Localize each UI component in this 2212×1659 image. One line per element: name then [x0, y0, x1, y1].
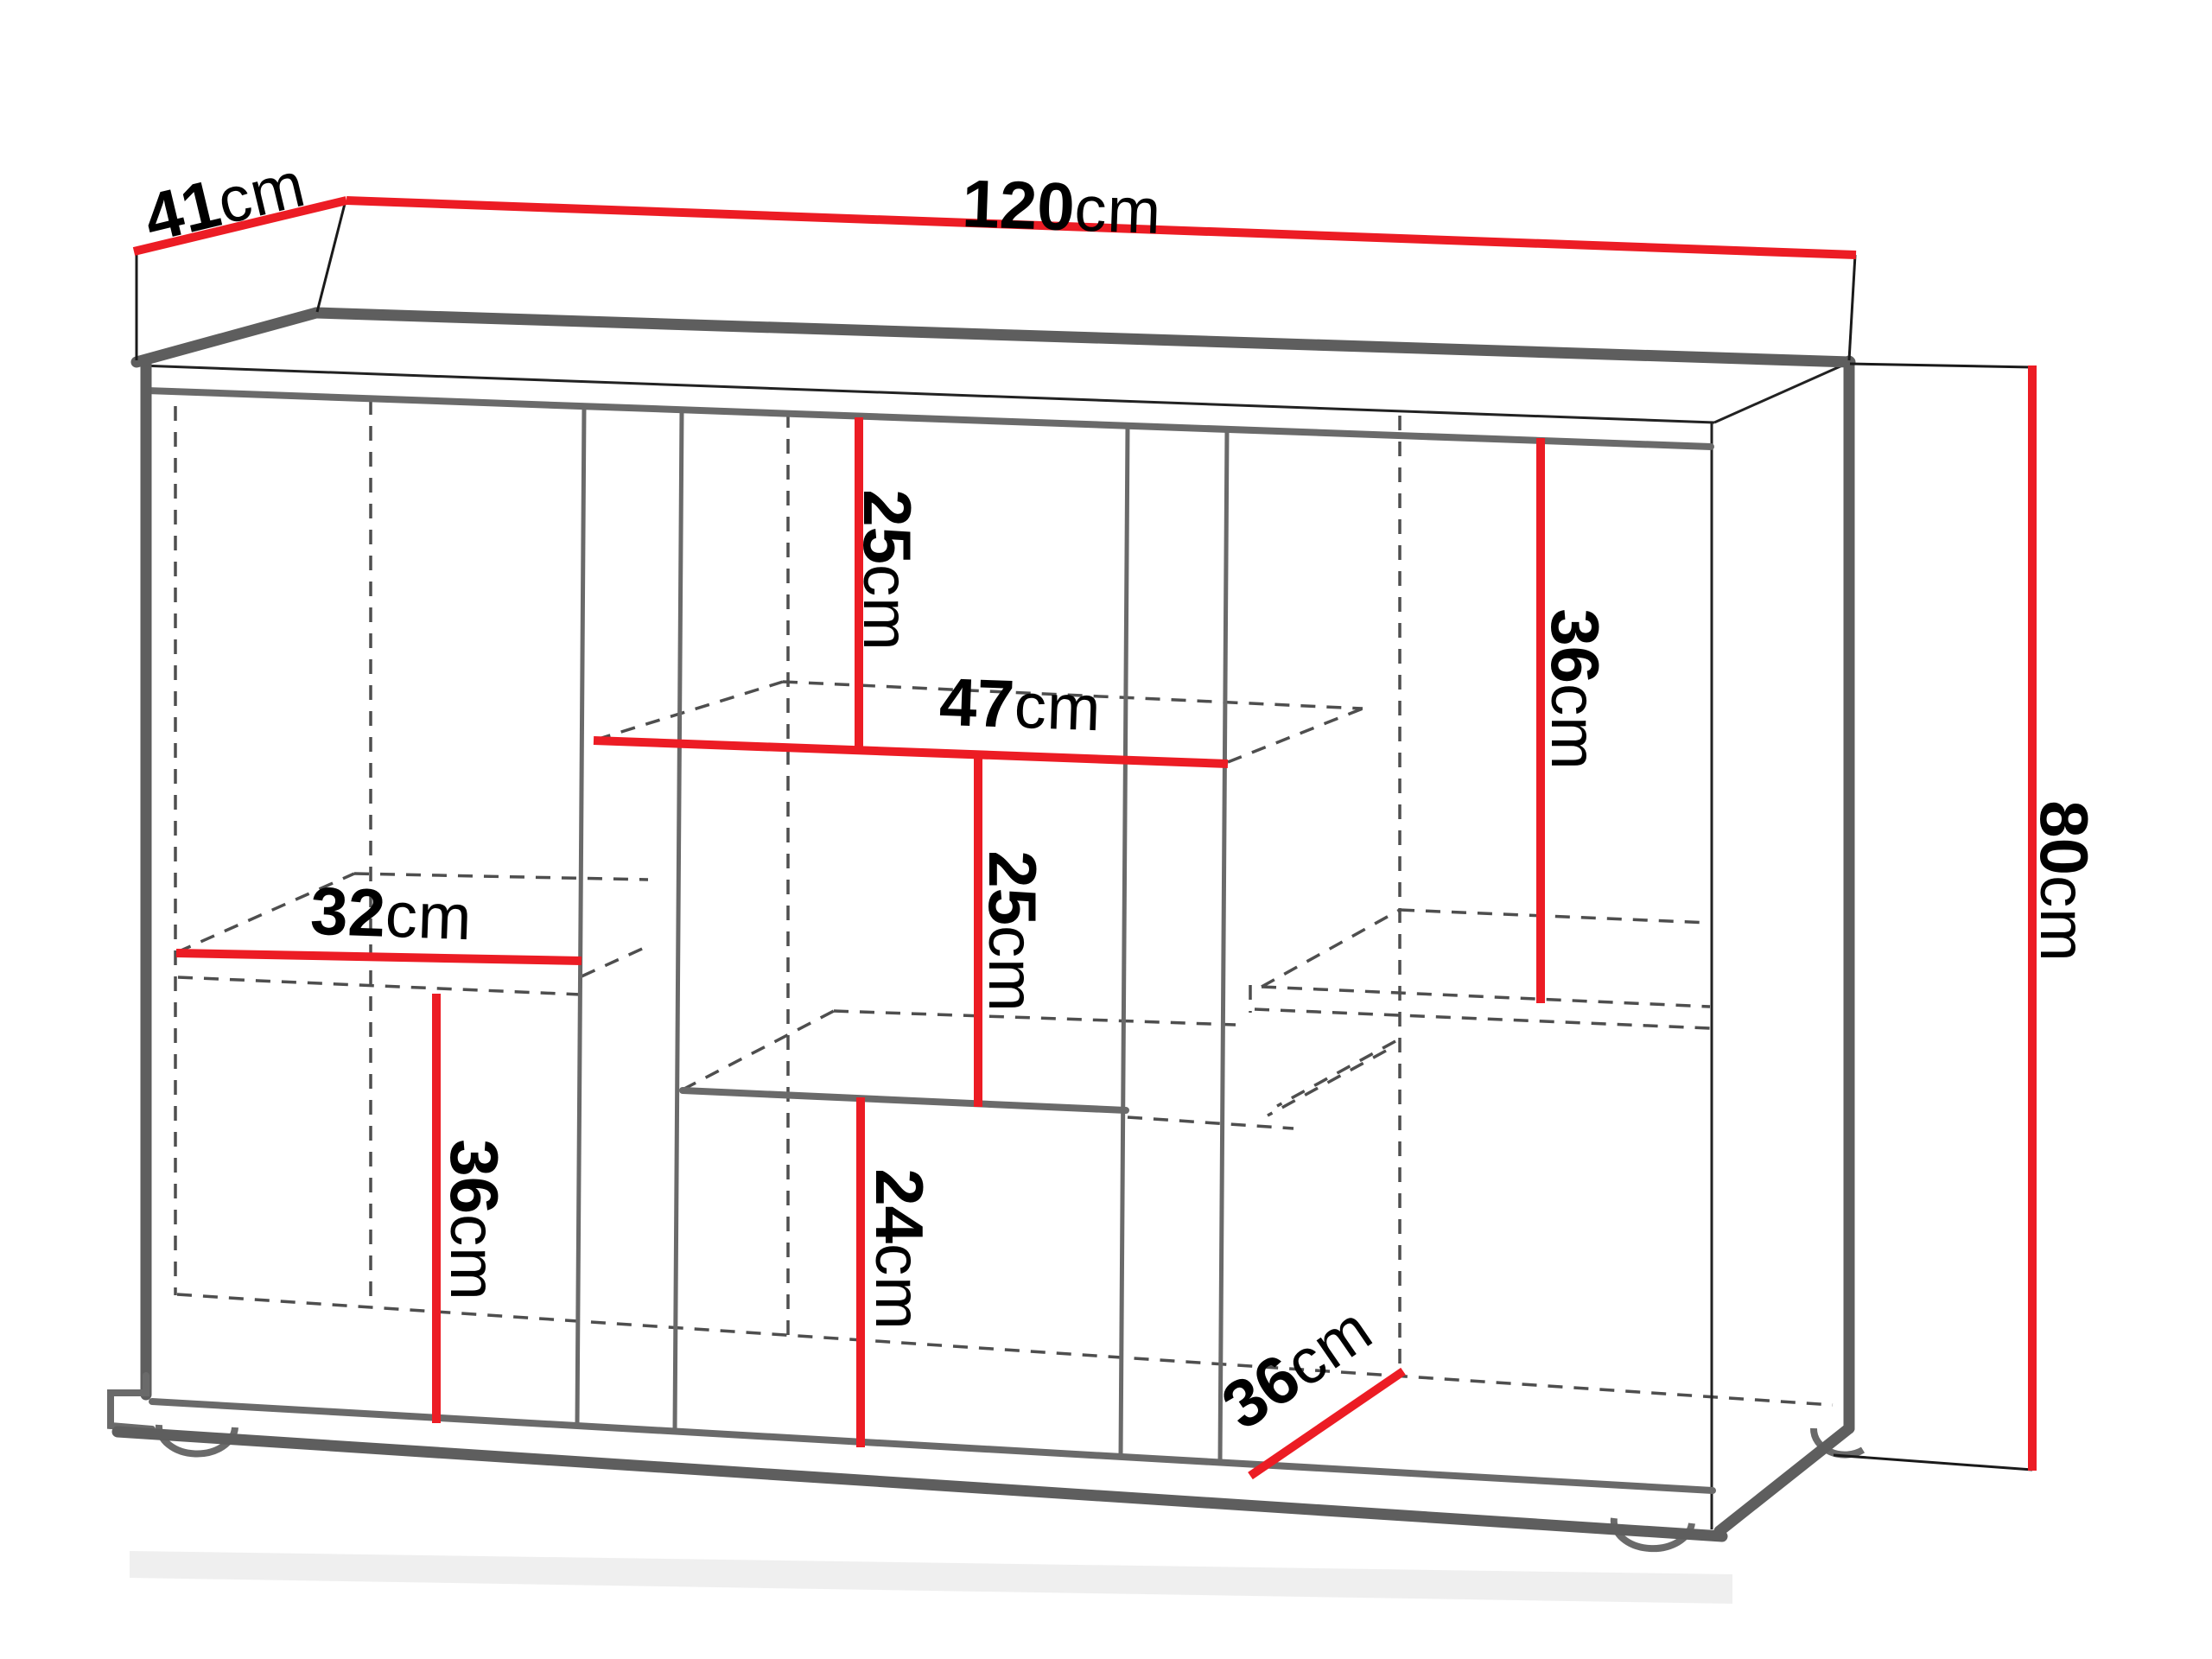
label-depth-41: 41cm	[137, 144, 312, 256]
middle-shelf-depth-edge	[596, 682, 783, 740]
label-24: 24cm	[861, 1168, 938, 1330]
right-bottom-depth-edge	[1719, 1428, 1849, 1531]
partition-right-b	[1220, 429, 1227, 1462]
plinth-step	[111, 1376, 152, 1429]
top-panel-front-edge	[140, 365, 1714, 423]
furniture-dimension-drawing: 41cm 120cm 80cm 25cm 47cm 25cm 32cm 36cm…	[0, 0, 2212, 1659]
label-36-left: 36cm	[436, 1139, 512, 1300]
carcass-top-edge	[147, 391, 1711, 447]
ext-height-bottom	[1834, 1455, 2032, 1470]
low-shelf-depth-edge	[683, 1011, 834, 1090]
low-shelf-under-edge	[1128, 1117, 1294, 1128]
top-back-edge	[316, 313, 1850, 362]
base-depth-edge-a	[1277, 1041, 1395, 1106]
left-shelf-right-depth-edge	[582, 945, 650, 976]
partition-left-a	[577, 406, 584, 1426]
extension-lines	[137, 200, 2032, 1470]
label-width-120: 120cm	[961, 165, 1163, 248]
label-47: 47cm	[938, 664, 1103, 745]
ext-height-top	[1850, 364, 2032, 367]
partition-right-a	[1121, 426, 1128, 1457]
right-shelf-back-edge	[1400, 910, 1710, 923]
label-36-right: 36cm	[1537, 608, 1613, 770]
base-depth-edge-b	[1268, 1051, 1386, 1116]
left-shelf-bottom-edge	[178, 977, 581, 995]
low-shelf-back-edge	[834, 1011, 1236, 1025]
hidden-bottom-panel-edge	[177, 1294, 1833, 1405]
label-25-top: 25cm	[849, 489, 925, 651]
dim-line-47	[594, 741, 1228, 764]
floor-shadow	[130, 1551, 1732, 1604]
ext-width-right	[1849, 255, 1855, 360]
partition-left-b	[675, 410, 682, 1431]
right-shelf-front-top-edge	[1262, 987, 1710, 1007]
label-25-mid: 25cm	[975, 850, 1051, 1012]
right-shelf-depth-edge	[1262, 910, 1400, 987]
top-panel-right-depth-edge	[1714, 362, 1850, 423]
right-shelf-front-bottom-edge	[1255, 1009, 1710, 1028]
dimension-lines	[134, 200, 2032, 1476]
diagram-page: 41cm 120cm 80cm 25cm 47cm 25cm 32cm 36cm…	[0, 0, 2212, 1659]
low-shelf-front-edge	[683, 1090, 1126, 1110]
label-height-80: 80cm	[2026, 800, 2102, 962]
ext-depth-back	[317, 200, 346, 312]
dim-line-32	[176, 953, 582, 961]
label-36-bottom: 36cm	[1209, 1289, 1385, 1444]
label-32: 32cm	[309, 873, 474, 954]
top-left-depth-edge	[137, 313, 316, 362]
middle-shelf-right-depth-edge	[1228, 709, 1363, 762]
